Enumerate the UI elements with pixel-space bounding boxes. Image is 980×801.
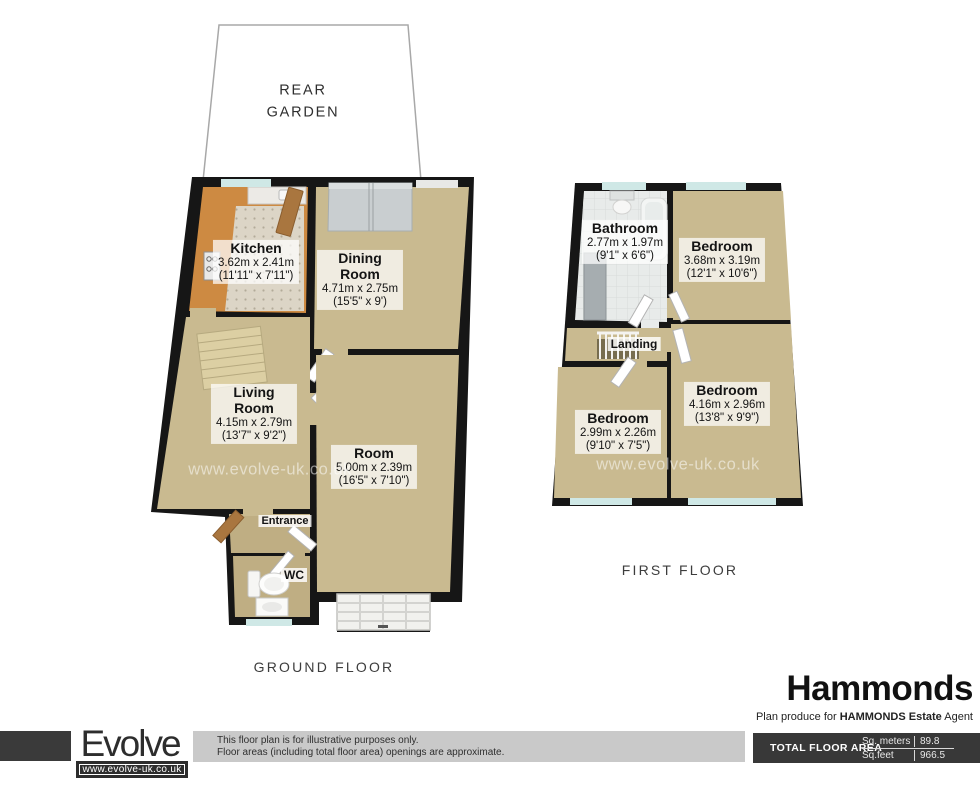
- room-label-entrance: Entrance: [258, 515, 311, 527]
- kitchen-window: [221, 179, 271, 187]
- room-label-dining: Dining Room 4.71m x 2.75m (15'5" x 9'): [317, 250, 403, 310]
- room-label-bathroom: Bathroom 2.77m x 1.97m (9'1" x 6'6"): [582, 220, 668, 264]
- dining-wardrobe: [328, 183, 412, 231]
- disclaimer-line-2: Floor areas (including total floor area)…: [217, 747, 745, 760]
- room-label-bedroom-mid: Bedroom 4.16m x 2.96m (13'8" x 9'9"): [684, 382, 770, 426]
- bay-window: [337, 594, 430, 630]
- total-area-table: Sq. meters 89.8 Sq.feet 966.5: [862, 735, 954, 762]
- watermark-first: www.evolve-uk.co.uk: [596, 456, 760, 475]
- room-label-wc: WC: [281, 568, 307, 582]
- sq-meters-value: 89.8: [914, 736, 954, 747]
- plan-credit: Plan produce for HAMMONDS Estate Agent: [756, 711, 973, 723]
- disclaimer-line-1: This floor plan is for illustrative purp…: [217, 735, 745, 748]
- bathroom-window: [602, 182, 646, 190]
- staircase: [197, 326, 267, 389]
- agent-name: Hammonds: [756, 671, 973, 706]
- evolve-url: www.evolve-uk.co.uk: [76, 761, 188, 778]
- dining-window: [416, 180, 458, 188]
- room-label-living: Living Room 4.15m x 2.79m (13'7" x 9'2"): [211, 384, 297, 444]
- evolve-logo: Evolve: [73, 723, 187, 765]
- room-label-bedroom-back: Bedroom 2.99m x 2.26m (9'10" x 7'5"): [575, 410, 661, 454]
- room-label-landing: Landing: [608, 337, 661, 351]
- rear-garden-label: REAR GARDEN: [255, 80, 351, 124]
- ground-floor-title: GROUND FLOOR: [254, 659, 395, 675]
- bedroom-back-window: [570, 498, 632, 505]
- bedroom-front-window: [686, 182, 746, 190]
- sq-feet-value: 966.5: [914, 750, 954, 761]
- agent-branding: Hammonds Plan produce for HAMMONDS Estat…: [756, 671, 973, 723]
- room-label-kitchen: Kitchen 3.62m x 2.41m (11'11" x 7'11"): [213, 240, 299, 284]
- wc-window: [246, 619, 292, 626]
- floorplan-page: REAR GARDEN Kitchen 3.62m x 2.41m (11'11…: [0, 0, 980, 801]
- footer-left-bar: [0, 731, 71, 761]
- table-row: Sq.feet 966.5: [862, 749, 954, 762]
- room-label-bedroom-front: Bedroom 3.68m x 3.19m (12'1" x 10'6"): [679, 238, 765, 282]
- table-row: Sq. meters 89.8: [862, 735, 954, 749]
- watermark-ground: www.evolve-uk.co.uk: [188, 461, 352, 480]
- bedroom-mid-window: [688, 498, 776, 505]
- total-area-bar: TOTAL FLOOR AREA Sq. meters 89.8 Sq.feet…: [753, 733, 980, 763]
- disclaimer-box: This floor plan is for illustrative purp…: [193, 731, 745, 762]
- sq-meters-label: Sq. meters: [862, 736, 914, 747]
- wc-sink: [256, 598, 288, 616]
- first-floor-title: FIRST FLOOR: [622, 562, 739, 578]
- sq-feet-label: Sq.feet: [862, 750, 914, 761]
